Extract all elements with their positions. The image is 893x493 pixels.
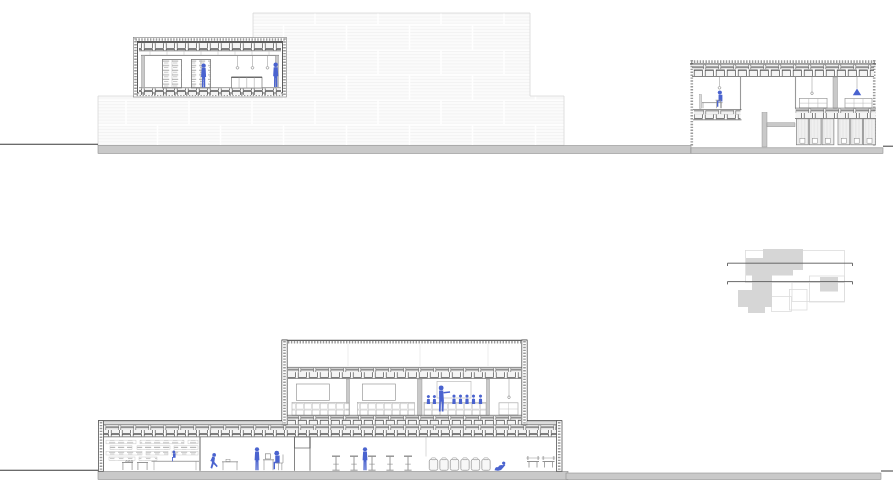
wall-right-outer [557,421,563,472]
bookshelf [163,60,182,88]
person-floor-exercise [495,461,506,470]
pendant-bulb [508,396,511,399]
seat-modules [424,403,486,416]
lounge-room [358,384,415,415]
bar-stool [386,456,394,470]
audience-person [452,395,455,405]
plan-building-mass [820,277,838,292]
storage-jar [429,458,437,471]
workspace-zone [210,437,310,471]
person-running [210,453,217,469]
plan-outline [772,297,792,312]
storage-jar [440,458,448,471]
audience-person [427,395,430,404]
bar-stool [350,456,358,470]
wall-shelf-rows [106,440,198,460]
table-items [126,461,133,463]
lounge-room [292,384,349,415]
section-drawing-canvas [0,0,893,493]
side-cabinet [499,403,518,415]
storage-jar [482,458,490,471]
key-plan [728,249,853,313]
locker [822,119,834,145]
partition [418,379,423,415]
bar-zone [332,437,426,470]
bar-stool [332,456,340,470]
desk-with-monitor [263,454,274,470]
room-partition [833,77,838,109]
locker-row [797,119,876,145]
wall-right [522,340,527,425]
low-cabinet [232,77,263,88]
wall-left [282,340,287,425]
roof-joist-band [690,64,876,77]
locker [797,119,809,145]
corner-room [499,379,518,415]
partition [487,379,490,415]
dormitory-section [690,60,876,147]
floor-joist-band [795,108,876,118]
central-block [282,340,527,425]
bar-stool [368,456,376,470]
person-sitting-on-counter [172,451,176,462]
ground-line-lower [0,470,893,479]
floor-joist-band [693,110,742,120]
audience-person [459,395,462,405]
locker [864,119,876,145]
storage-jar [450,458,458,471]
upper-floor [292,379,518,415]
cafe-table [137,463,148,471]
reading-room-section [134,38,287,98]
gym-bench [542,456,556,467]
ground-line-upper [0,144,893,153]
wall-screen [363,384,396,401]
bed [845,99,872,109]
roof-void-joints [348,344,488,366]
desk-return-panel [700,95,702,109]
lower-section [0,340,893,480]
wing-roof-slab [99,421,283,425]
bookshelf [192,60,211,88]
audience-person [472,395,475,405]
ground-slab-step [566,473,881,480]
storage-jar [471,458,479,471]
pilaster-left [142,55,145,87]
ground-slab-step [691,148,883,154]
gym-zone [429,456,555,471]
plan-building-mass [738,249,803,313]
upper-ceiling-joist-band [287,367,522,378]
locker [851,119,863,145]
sofa-modules [292,403,349,416]
ground-slab [98,146,691,154]
person-standing-at-bar [363,447,368,470]
gym-bench [526,456,540,467]
wall-screen [297,384,330,401]
audience-person [465,395,468,405]
ceiling-joist-band [99,425,563,437]
locker [809,119,821,145]
upper-floor-slab [287,415,522,424]
seminar-room [424,382,486,416]
drawing-sheet [0,0,893,493]
storage-jar [461,458,469,471]
wall-left-outer [99,421,104,472]
pendant-bulb [811,92,814,95]
blue-hanging-lamp [853,89,861,96]
audience-person [479,395,482,405]
stair-wall [762,113,795,148]
ground-slab [98,471,568,479]
desk [222,460,238,471]
study-room [693,77,742,120]
person-standing-at-desk [255,447,260,470]
bed [800,99,828,109]
bar-stool [404,456,412,470]
upper-section [0,13,893,154]
audience-person [433,395,436,404]
door-frame [295,437,311,471]
ground-floor [98,421,562,472]
library-zone [106,437,200,471]
sofa-modules [358,403,415,416]
cafe-table [122,463,133,471]
locker [838,119,850,145]
pendant-bulb [718,87,721,90]
bedrooms [795,77,876,119]
floor-joist-band [139,88,281,95]
counter [152,461,200,470]
